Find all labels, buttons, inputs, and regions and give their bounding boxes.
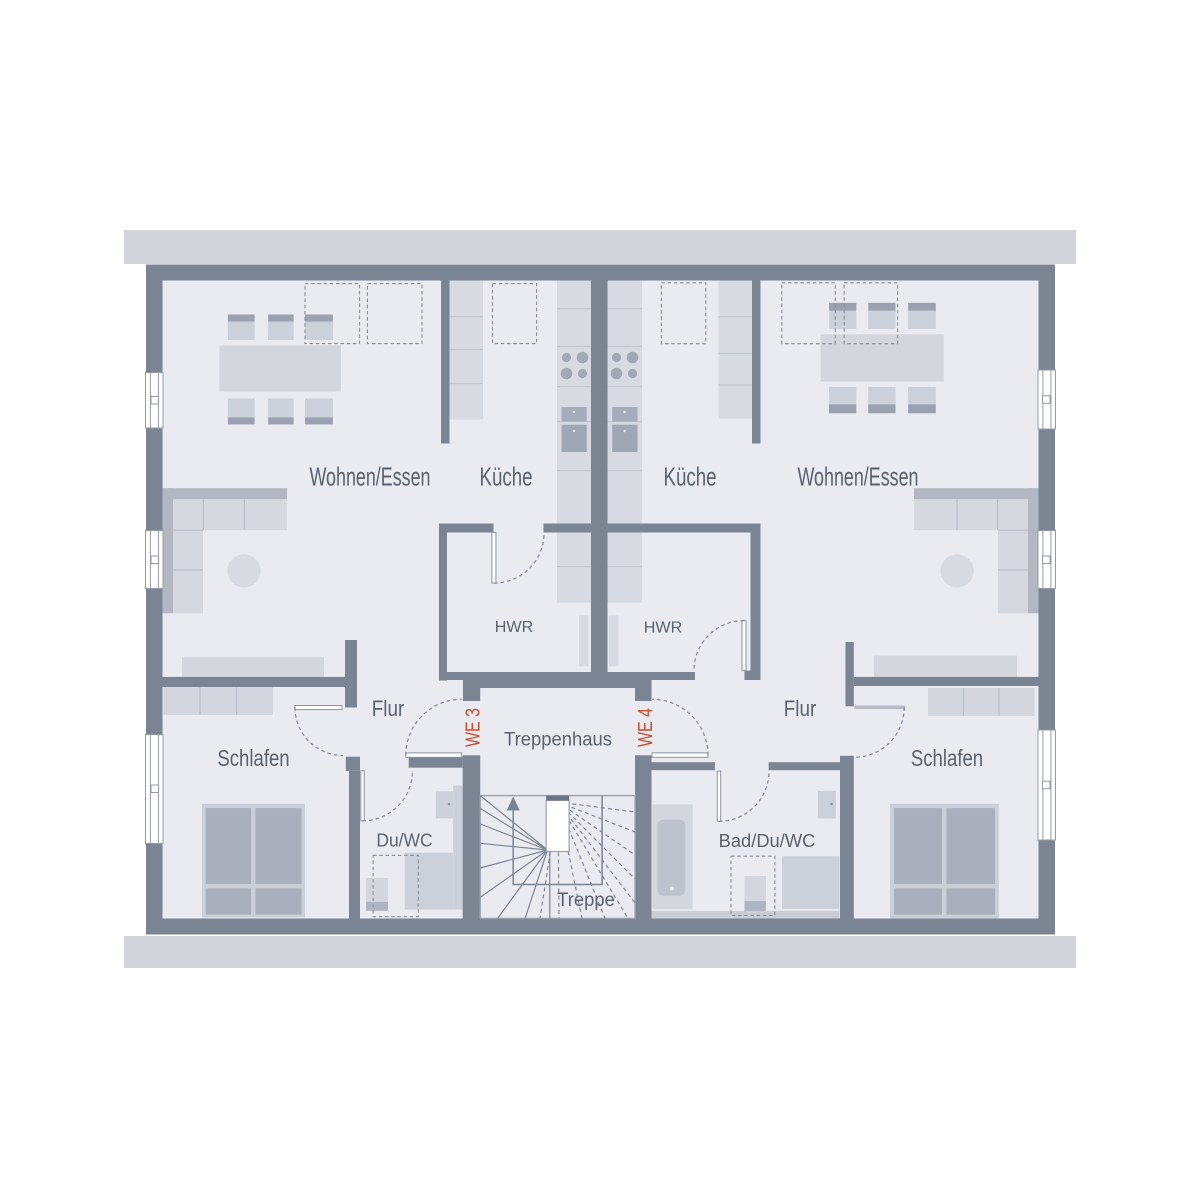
svg-text:Wohnen/Essen: Wohnen/Essen	[310, 462, 431, 492]
svg-text:Treppe: Treppe	[557, 890, 615, 911]
svg-text:WE 3: WE 3	[462, 708, 484, 747]
svg-text:Bad/Du/WC: Bad/Du/WC	[719, 831, 816, 851]
svg-text:Du/WC: Du/WC	[376, 831, 432, 851]
svg-text:Wohnen/Essen: Wohnen/Essen	[798, 462, 919, 492]
svg-text:Schlafen: Schlafen	[217, 745, 289, 771]
svg-text:HWR: HWR	[644, 620, 683, 637]
svg-text:Treppenhaus: Treppenhaus	[504, 730, 612, 751]
svg-text:WE 4: WE 4	[635, 708, 657, 747]
svg-text:Flur: Flur	[372, 696, 405, 721]
svg-text:Flur: Flur	[784, 696, 817, 721]
svg-text:Schlafen: Schlafen	[911, 745, 983, 771]
svg-text:Küche: Küche	[480, 462, 533, 492]
svg-text:Küche: Küche	[664, 462, 717, 492]
svg-text:HWR: HWR	[495, 619, 534, 636]
